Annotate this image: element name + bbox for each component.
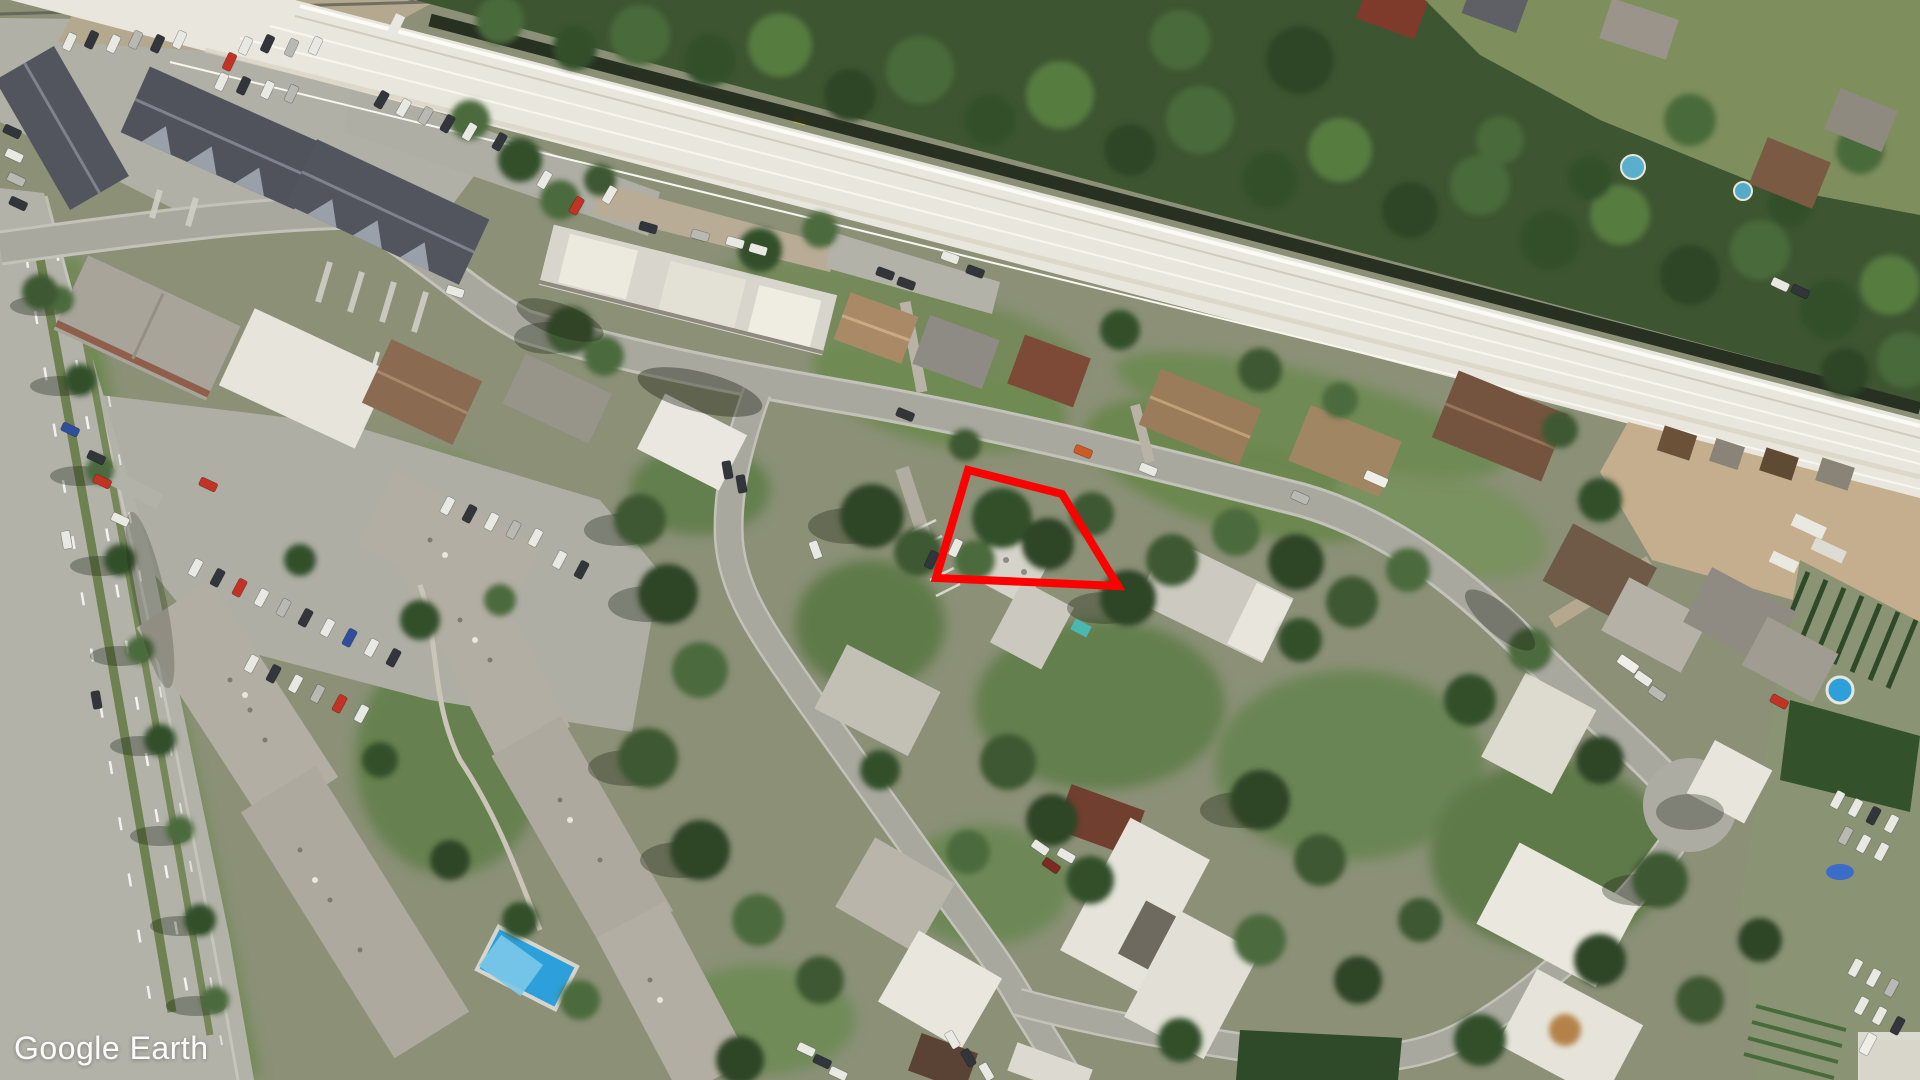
satellite-imagery-canvas[interactable] bbox=[0, 0, 1920, 1080]
google-earth-viewport: Google Earth bbox=[0, 0, 1920, 1080]
round-pool bbox=[1827, 677, 1853, 703]
rust-stain bbox=[1549, 1014, 1581, 1046]
round-pool bbox=[1734, 182, 1752, 200]
google-earth-watermark: Google Earth bbox=[14, 1030, 209, 1067]
blue-tarp bbox=[1826, 864, 1854, 880]
round-pool bbox=[1621, 155, 1645, 179]
